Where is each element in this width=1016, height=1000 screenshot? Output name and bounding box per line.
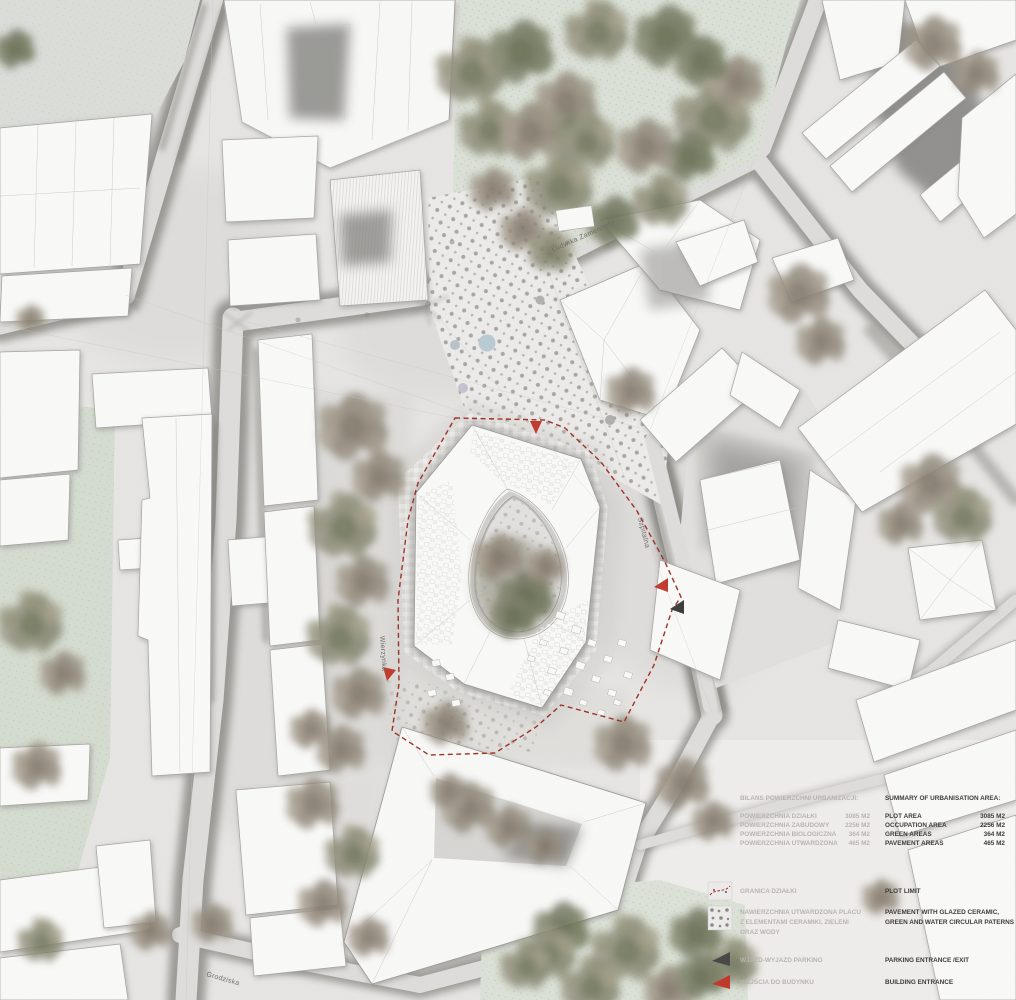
svg-text:POWIERZCHNIA DZIAŁKI: POWIERZCHNIA DZIAŁKI [740, 813, 817, 820]
svg-text:POWIERZCHNIA UTWARDZONA: POWIERZCHNIA UTWARDZONA [740, 840, 838, 847]
svg-text:PARKING ENTRANCE /EXIT: PARKING ENTRANCE /EXIT [885, 957, 969, 964]
svg-text:BILANS POWIERZCHNI URBANIZACJI: BILANS POWIERZCHNI URBANIZACJI: [740, 795, 858, 802]
svg-text:PAVEMENT WITH GLAZED CERAMIC,: PAVEMENT WITH GLAZED CERAMIC, [885, 909, 999, 916]
svg-text:NAWIERZCHNIA UTWARDZONA PLACU: NAWIERZCHNIA UTWARDZONA PLACU [740, 909, 861, 916]
svg-text:OCCUPATION AREA: OCCUPATION AREA [885, 822, 947, 829]
svg-text:POWIERZCHNIA ZABUDOWY: POWIERZCHNIA ZABUDOWY [740, 822, 830, 829]
svg-text:WEJŚCIA DO BUDYNKU: WEJŚCIA DO BUDYNKU [740, 977, 814, 986]
svg-text:Z ELEMENTAMI CERAMIKI, ZIELENI: Z ELEMENTAMI CERAMIKI, ZIELENI [740, 919, 849, 926]
svg-text:SUMMARY OF URBANISATION AREA:: SUMMARY OF URBANISATION AREA: [885, 795, 1000, 802]
svg-text:3085 M2: 3085 M2 [980, 813, 1005, 820]
svg-text:ORAZ WODY: ORAZ WODY [740, 929, 780, 936]
svg-text:2256 M2: 2256 M2 [845, 822, 870, 829]
svg-text:465 M2: 465 M2 [984, 840, 1006, 847]
svg-text:PLOT AREA: PLOT AREA [885, 813, 922, 820]
svg-text:PAVEMENT AREAS: PAVEMENT AREAS [885, 840, 944, 847]
svg-text:GRANICA DZIAŁKI: GRANICA DZIAŁKI [740, 888, 797, 895]
svg-text:POWIERZCHNIA BIOLOGICZNA: POWIERZCHNIA BIOLOGICZNA [740, 831, 837, 838]
svg-text:GREEN AND WATER CIRCULAR PATER: GREEN AND WATER CIRCULAR PATERNS [885, 919, 1015, 926]
svg-text:WJAZD-WYJAZD PARKING: WJAZD-WYJAZD PARKING [740, 957, 823, 964]
svg-text:364 M2: 364 M2 [849, 831, 871, 838]
svg-text:465 M2: 465 M2 [849, 840, 871, 847]
svg-text:2256 M2: 2256 M2 [980, 822, 1005, 829]
svg-text:GREEN AREAS: GREEN AREAS [885, 831, 932, 838]
svg-text:BUILDING ENTRANCE: BUILDING ENTRANCE [885, 979, 954, 986]
svg-text:3085 M2: 3085 M2 [845, 813, 870, 820]
svg-text:PLOT LIMIT: PLOT LIMIT [885, 888, 921, 895]
svg-text:364 M2: 364 M2 [984, 831, 1006, 838]
